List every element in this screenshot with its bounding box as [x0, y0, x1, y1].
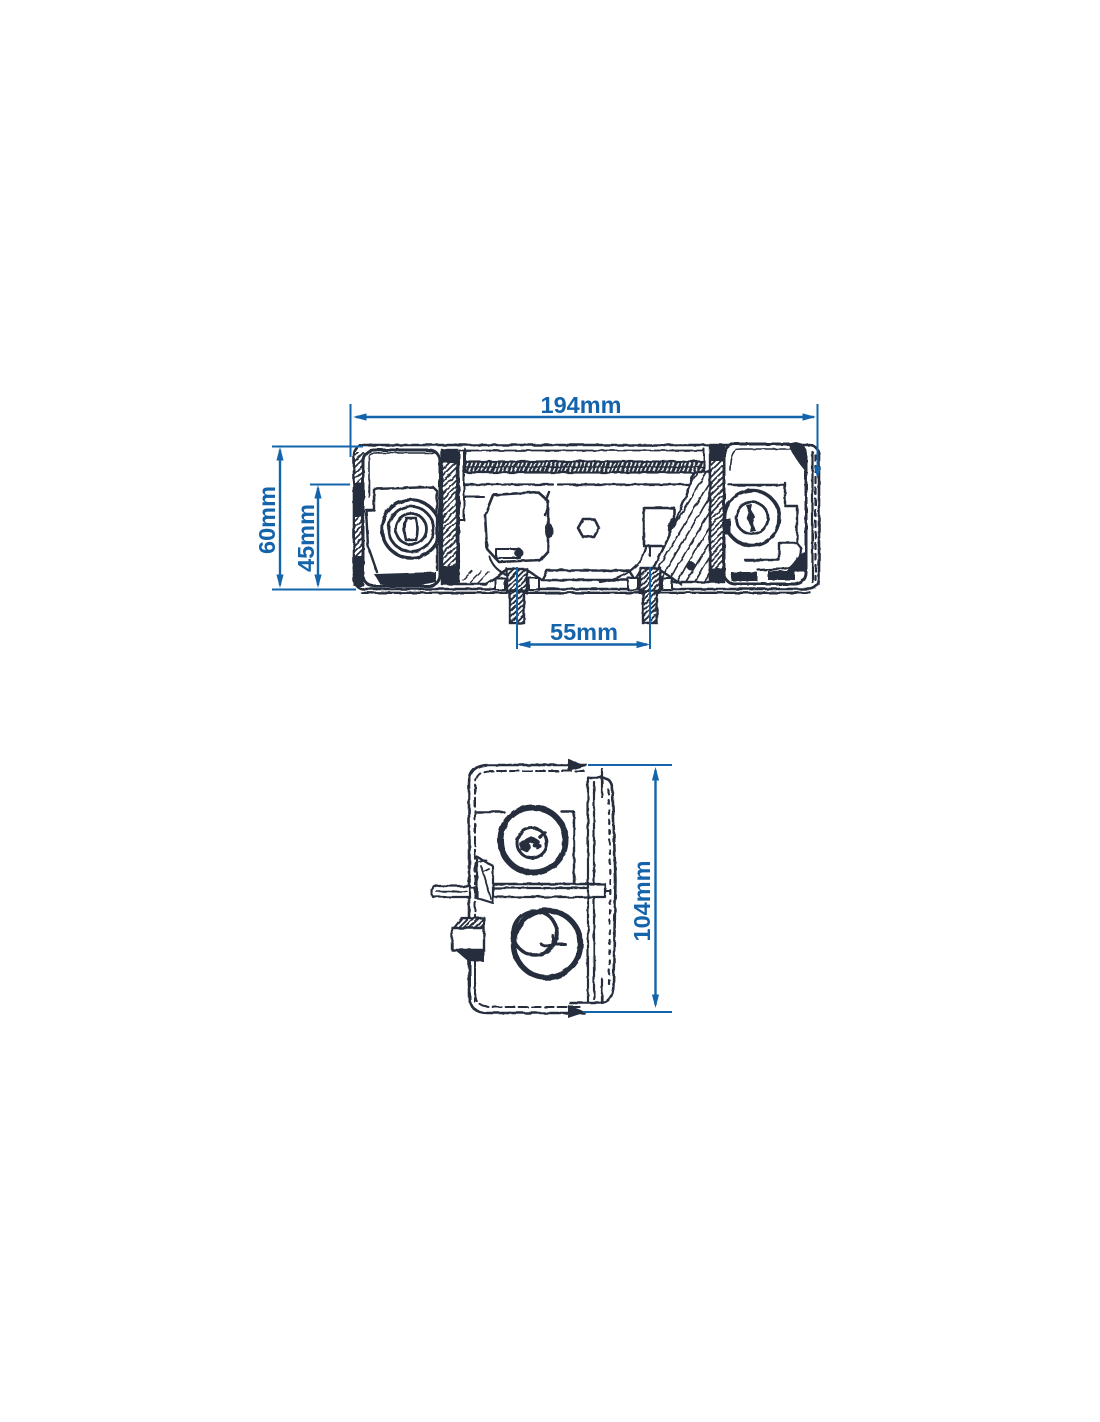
svg-text:55mm: 55mm: [550, 619, 618, 645]
svg-text:60mm: 60mm: [254, 486, 280, 554]
svg-text:104mm: 104mm: [629, 861, 655, 942]
svg-text:45mm: 45mm: [293, 504, 319, 572]
svg-text:194mm: 194mm: [541, 392, 622, 418]
